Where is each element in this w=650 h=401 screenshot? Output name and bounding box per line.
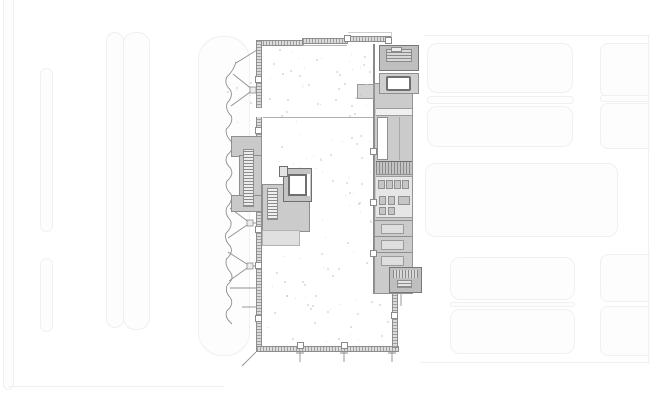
wall-pilaster (391, 312, 398, 319)
wall-pilaster (344, 35, 351, 42)
wall-pilaster (370, 199, 377, 206)
wall-pilaster (255, 76, 262, 83)
wall-pilaster (370, 148, 377, 155)
wall-pilaster (341, 342, 348, 349)
floor-plan-canvas (0, 0, 650, 401)
pilaster-layer (0, 0, 650, 401)
wall-pilaster (255, 226, 262, 233)
wall-pilaster (297, 342, 304, 349)
wall-pilaster (255, 127, 262, 134)
wall-pilaster (255, 315, 262, 322)
wall-pilaster (255, 262, 262, 269)
wall-pilaster (385, 37, 392, 44)
wall-pilaster (370, 250, 377, 257)
